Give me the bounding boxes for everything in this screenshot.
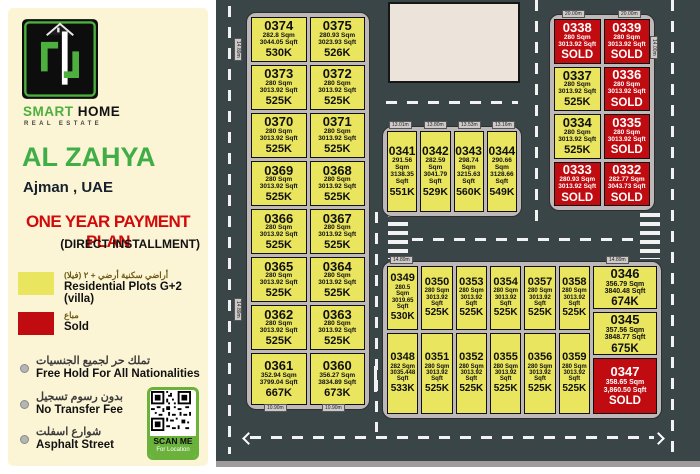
plot-area-sqft: 3013.92 Sqft — [422, 370, 451, 383]
dimension-tag: 10.90m — [322, 404, 345, 412]
feature-bullet — [20, 364, 29, 373]
plot-area-sqft: 3013.92 Sqft — [558, 137, 596, 144]
plot-0348: 0348282 Sqm3035.448 Sqft533K — [387, 333, 418, 414]
plot-number: 0373 — [264, 67, 293, 81]
plot-number: 0347 — [611, 365, 640, 379]
plot-sold-label: SOLD — [561, 192, 593, 204]
road-centerline-left — [228, 6, 231, 454]
dimension-tag: 13.16m — [492, 121, 515, 129]
feature-freehold-ar: تملك حر لجميع الجنسيات — [36, 354, 200, 367]
plot-0337: 0337280 Sqm3013.92 Sqft525K — [554, 67, 601, 112]
dimension-tag: 14.89m — [606, 256, 629, 264]
legend-sold-label-en: Sold — [64, 321, 214, 333]
plot-area-sqft: 3013.92 Sqft — [560, 370, 589, 383]
plot-area-sqft: 3013.92 Sqft — [608, 42, 646, 49]
feature-freehold-en: Free Hold For All Nationalities — [36, 368, 200, 380]
plot-number: 0362 — [264, 308, 293, 322]
plot-0374: 0374282.8 Sqm3044.05 Sqft530K — [251, 17, 307, 62]
plot-0356: 0356280 Sqm3013.92 Sqft525K — [524, 333, 555, 414]
qr-scan-label: SCAN ME — [150, 436, 196, 447]
plot-price: 525K — [494, 308, 518, 319]
plot-number: 0336 — [612, 68, 641, 82]
plot-area-sqft: 3013.92 Sqft — [608, 137, 646, 144]
plot-number: 0367 — [323, 212, 352, 226]
plot-price: 525K — [266, 336, 292, 348]
plot-number: 0374 — [264, 19, 293, 33]
plot-0370: 0370280 Sqm3013.92 Sqft525K — [251, 113, 307, 158]
plot-area-sqm: 291.56 Sqm — [388, 158, 416, 172]
plot-0351: 0351280 Sqm3013.92 Sqft525K — [421, 333, 452, 414]
plot-area-sqft: 3044.05 Sqft — [260, 40, 298, 47]
plot-price: 525K — [425, 308, 449, 319]
road-centerline-top — [386, 101, 518, 104]
plot-price: 525K — [266, 192, 292, 204]
plot-area-sqm: 356.79 Sqm — [606, 281, 645, 288]
plot-price: 525K — [494, 384, 518, 395]
block-southeast-plots: 0346356.79 Sqm3840.48 Sqft674K0345357.56… — [593, 266, 657, 414]
plot-price: 525K — [324, 144, 350, 156]
plot-0341: 0341291.56 Sqm3138.35 Sqft551K — [387, 131, 417, 212]
plot-price: 667K — [266, 388, 292, 400]
plot-number: 0375 — [323, 19, 352, 33]
dimension-tag: 13.53m — [458, 121, 481, 129]
plot-number: 0363 — [323, 308, 352, 322]
plot-price: 525K — [425, 384, 449, 395]
plot-price: 525K — [564, 97, 590, 109]
plot-area-sqft: 3013.92 Sqft — [558, 184, 596, 191]
road-centerline-bottom — [250, 436, 654, 439]
plot-0338: 0338280 Sqm3013.92 SqftSOLD — [554, 19, 601, 64]
project-title: AL ZAHYA — [22, 142, 156, 173]
plot-number: 0364 — [323, 260, 352, 274]
plot-area-sqft: 3013.92 Sqft — [318, 136, 356, 143]
plot-number: 0339 — [612, 21, 641, 35]
plot-price: 525K — [459, 384, 483, 395]
feature-asphalt-en: Asphalt Street — [36, 439, 114, 451]
plot-area-sqft: 3013.92 Sqft — [491, 370, 520, 383]
legend-available-swatch — [18, 272, 54, 295]
road-centerline-center — [412, 238, 636, 241]
plot-0339: 0339280 Sqm3013.92 SqftSOLD — [604, 19, 651, 64]
road-centerline-west — [375, 212, 378, 432]
plot-0332: 0332282.77 Sqm3043.73 SqftSOLD — [604, 162, 651, 207]
plot-number: 0365 — [264, 260, 293, 274]
plot-0344: 0344290.66 Sqm3128.66 Sqft549K — [487, 131, 517, 212]
smart-home-logo — [22, 18, 98, 100]
plot-area-sqft: 3013.92 Sqft — [491, 295, 520, 308]
plot-number: 0335 — [612, 116, 641, 130]
plot-price: 525K — [564, 145, 590, 157]
plot-price: 525K — [266, 144, 292, 156]
feature-no-fee-ar: بدون رسوم تسجيل — [36, 390, 123, 403]
plot-area-sqft: 3013.92 Sqft — [422, 295, 451, 308]
legend-available: أراضي سكنية أرضي + ٢ (فيلا) Residential … — [18, 270, 206, 300]
site-map: 0374282.8 Sqm3044.05 Sqft530K0375280.93 … — [216, 0, 700, 461]
plot-0342: 0342282.59 Sqm3041.79 Sqft529K — [420, 131, 450, 212]
road-centerline-mid — [535, 0, 538, 230]
plot-number: 0358 — [562, 277, 586, 289]
plot-number: 0334 — [563, 116, 592, 130]
offer-subheadline: (DIRECT INSTALLMENT) — [60, 237, 200, 251]
plot-area-sqft: 3013.92 Sqft — [558, 89, 596, 96]
plot-number: 0352 — [459, 352, 483, 364]
plot-area-sqft: 3128.66 Sqft — [488, 172, 516, 186]
plot-sold-label: SOLD — [561, 49, 593, 61]
plot-area-sqft: 3138.35 Sqft — [388, 172, 416, 186]
plot-number: 0346 — [611, 267, 640, 281]
plot-price: 525K — [459, 308, 483, 319]
plot-price: 551K — [390, 187, 415, 198]
plot-0373: 0373280 Sqm3013.92 Sqft525K — [251, 65, 307, 110]
block-south: 0349280.5 Sqm3019.65 Sqft530K0350280 Sqm… — [382, 261, 662, 419]
plot-0352: 0352280 Sqm3013.92 Sqft525K — [456, 333, 487, 414]
plot-0375: 0375280.93 Sqm3023.93 Sqft526K — [310, 17, 366, 62]
plot-price: 674K — [611, 296, 639, 308]
plot-price: 675K — [611, 343, 639, 355]
plot-number: 0345 — [611, 313, 640, 327]
brand-name: SMART HOME — [23, 104, 120, 119]
crosswalk-center-right — [640, 213, 660, 259]
feature-freehold: تملك حر لجميع الجنسيات Free Hold For All… — [36, 354, 200, 380]
road-arrow-left — [242, 432, 255, 445]
plot-area-sqft: 3013.92 Sqft — [260, 280, 298, 287]
plot-price: 526K — [324, 48, 350, 60]
plot-number: 0370 — [264, 115, 293, 129]
plot-number: 0371 — [323, 115, 352, 129]
plot-sold-label: SOLD — [611, 144, 643, 156]
community-building — [388, 2, 520, 83]
plot-price: 530K — [391, 312, 415, 323]
block-south-plots: 0349280.5 Sqm3019.65 Sqft530K0350280 Sqm… — [387, 266, 590, 414]
plot-area-sqft: 3023.93 Sqft — [318, 40, 356, 47]
plot-price: 525K — [324, 288, 350, 300]
feature-asphalt-ar: شوارع اسفلت — [36, 425, 114, 438]
plot-price: 533K — [391, 384, 415, 395]
plot-number: 0338 — [563, 21, 592, 35]
dimension-tag: 14.89m — [234, 298, 242, 321]
plot-number: 0359 — [562, 352, 586, 364]
plot-sold-label: SOLD — [611, 97, 643, 109]
plot-price: 549K — [489, 187, 514, 198]
plot-area-sqm: 357.56 Sqm — [606, 327, 645, 334]
plot-area-sqm: 298.74 Sqm — [455, 158, 483, 172]
plot-price: 525K — [528, 384, 552, 395]
plot-0362: 0362280 Sqm3013.92 Sqft525K — [251, 305, 307, 350]
plot-0369: 0369280 Sqm3013.92 Sqft525K — [251, 161, 307, 206]
plot-area-sqft: 3215.63 Sqft — [455, 172, 483, 186]
plot-0361: 0361352.94 Sqm3799.04 Sqft667K — [251, 353, 307, 405]
legend-sold: مباع Sold — [18, 310, 206, 340]
plot-area-sqft: 3013.92 Sqft — [558, 42, 596, 49]
plot-number: 0333 — [563, 163, 592, 177]
plot-number: 0355 — [493, 352, 517, 364]
plot-area-sqft: 3013.92 Sqft — [260, 184, 298, 191]
plot-price: 530K — [266, 48, 292, 60]
crosswalk-center-left — [388, 213, 408, 259]
plot-number: 0369 — [264, 164, 293, 178]
feature-no-fee-en: No Transfer Fee — [36, 404, 123, 416]
plot-number: 0332 — [612, 163, 641, 177]
plot-area-sqft: 3013.92 Sqft — [457, 370, 486, 383]
plot-price: 525K — [562, 308, 586, 319]
legend-available-label-ar: أراضي سكنية أرضي + ٢ (فيلا) — [64, 270, 204, 281]
plot-0354: 0354280 Sqm3013.92 Sqft525K — [490, 266, 521, 330]
block-northeast-plots: 0338280 Sqm3013.92 SqftSOLD0339280 Sqm30… — [554, 19, 650, 206]
plot-number: 0366 — [264, 212, 293, 226]
feature-asphalt: شوارع اسفلت Asphalt Street — [36, 425, 114, 451]
plot-area-sqm: 282.59 Sqm — [421, 158, 449, 172]
block-west-plots: 0374282.8 Sqm3044.05 Sqft530K0375280.93 … — [251, 17, 365, 405]
block-center: 0341291.56 Sqm3138.35 Sqft551K0342282.59… — [382, 126, 522, 217]
plot-price: 525K — [562, 384, 586, 395]
plot-area-sqft: 3013.92 Sqft — [318, 280, 356, 287]
plot-area-sqft: 3013.92 Sqft — [560, 295, 589, 308]
info-sidebar: SMART HOME REAL ESTATE AL ZAHYA Ajman , … — [8, 8, 208, 466]
plot-0353: 0353280 Sqm3013.92 Sqft525K — [456, 266, 487, 330]
plot-price: 525K — [266, 240, 292, 252]
plot-price: 560K — [456, 187, 481, 198]
plot-0364: 0364280 Sqm3013.92 Sqft525K — [310, 257, 366, 302]
plot-price: 529K — [423, 187, 448, 198]
plot-price: 525K — [324, 192, 350, 204]
plot-area-sqft: 3799.04 Sqft — [260, 380, 298, 387]
plot-area-sqft: 3013.92 Sqft — [525, 295, 554, 308]
plot-number: 0361 — [264, 359, 293, 373]
plot-area-sqft: 3013.92 Sqft — [260, 328, 298, 335]
plot-0358: 0358280 Sqm3013.92 Sqft525K — [559, 266, 590, 330]
road-centerline-right — [671, 0, 674, 452]
plot-area-sqft: 3834.89 Sqft — [318, 380, 356, 387]
plot-0347: 0347358.65 Sqm3,860.50 SqftSOLD — [593, 358, 657, 414]
plot-0367: 0367280 Sqm3013.92 Sqft525K — [310, 209, 366, 254]
qr-code-box: SCAN ME For Location — [147, 387, 199, 460]
plot-price: 525K — [324, 96, 350, 108]
plot-area-sqft: 3035.448 Sqft — [388, 370, 417, 383]
plot-area-sqft: 3043.73 Sqft — [608, 184, 646, 191]
project-location: Ajman , UAE — [23, 179, 113, 196]
plot-sold-label: SOLD — [609, 395, 641, 407]
plot-price: 673K — [324, 388, 350, 400]
plot-sold-label: SOLD — [611, 192, 643, 204]
plot-0359: 0359280 Sqm3013.92 Sqft525K — [559, 333, 590, 414]
plot-0357: 0357280 Sqm3013.92 Sqft525K — [524, 266, 555, 330]
feature-bullet — [20, 435, 29, 444]
block-center-plots: 0341291.56 Sqm3138.35 Sqft551K0342282.59… — [387, 131, 517, 212]
plot-area-sqft: 3013.92 Sqft — [260, 136, 298, 143]
qr-caption: SCAN ME For Location — [150, 436, 196, 457]
legend-sold-swatch — [18, 312, 54, 335]
plot-area-sqft: 3019.65 Sqft — [388, 298, 417, 311]
plot-0366: 0366280 Sqm3013.92 Sqft525K — [251, 209, 307, 254]
dimension-tag: 14.89m — [234, 38, 242, 61]
plot-area-sqft: 3848.77 Sqft — [605, 334, 646, 341]
plot-number: 0368 — [323, 164, 352, 178]
dimension-tag: 10.90m — [264, 404, 287, 412]
plot-0345: 0345357.56 Sqm3848.77 Sqft675K — [593, 312, 657, 355]
plot-area-sqft: 3013.92 Sqft — [318, 328, 356, 335]
plot-area-sqft: 3013.92 Sqft — [260, 88, 298, 95]
plot-price: 525K — [266, 96, 292, 108]
plot-number: 0360 — [323, 359, 352, 373]
plot-number: 0349 — [390, 273, 414, 285]
plot-0371: 0371280 Sqm3013.92 Sqft525K — [310, 113, 366, 158]
plot-0349: 0349280.5 Sqm3019.65 Sqft530K — [387, 266, 418, 330]
plot-0368: 0368280 Sqm3013.92 Sqft525K — [310, 161, 366, 206]
plot-area-sqft: 3013.92 Sqft — [318, 88, 356, 95]
plot-0355: 0355280 Sqm3013.92 Sqft525K — [490, 333, 521, 414]
dimension-tag: 14.89m — [390, 256, 413, 264]
plot-area-sqft: 3013.92 Sqft — [608, 89, 646, 96]
dimension-tag: 13.01m — [389, 121, 412, 129]
brand-secondary: HOME — [78, 104, 121, 119]
road-arrow-right — [652, 432, 665, 445]
plot-area-sqft: 3840.48 Sqft — [605, 288, 646, 295]
plot-price: 525K — [266, 288, 292, 300]
block-west: 0374282.8 Sqm3044.05 Sqft530K0375280.93 … — [246, 12, 370, 410]
brand-primary: SMART — [23, 104, 74, 119]
plot-sold-label: SOLD — [611, 49, 643, 61]
plot-area-sqft: 3,860.50 Sqft — [604, 387, 647, 394]
feature-no-fee: بدون رسوم تسجيل No Transfer Fee — [36, 390, 123, 416]
plot-0346: 0346356.79 Sqm3840.48 Sqft674K — [593, 266, 657, 309]
plot-area-sqft: 3013.92 Sqft — [260, 232, 298, 239]
plot-number: 0337 — [563, 69, 592, 83]
plot-area-sqft: 3013.92 Sqft — [525, 370, 554, 383]
dimension-tag: 14.00m — [650, 36, 658, 59]
plot-area-sqm: 280.5 Sqm — [388, 285, 417, 298]
plot-number: 0372 — [323, 67, 352, 81]
plot-number: 0353 — [459, 277, 483, 289]
plot-0335: 0335280 Sqm3013.92 SqftSOLD — [604, 114, 651, 159]
qr-location-label: For Location — [150, 447, 196, 454]
plot-price: 525K — [324, 240, 350, 252]
plot-0334: 0334280 Sqm3013.92 Sqft525K — [554, 114, 601, 159]
plot-0350: 0350280 Sqm3013.92 Sqft525K — [421, 266, 452, 330]
map-edge-sidewalk — [216, 461, 700, 467]
plot-0363: 0363280 Sqm3013.92 Sqft525K — [310, 305, 366, 350]
plot-price: 525K — [528, 308, 552, 319]
plot-number: 0351 — [425, 352, 449, 364]
plot-0336: 0336280 Sqm3013.92 SqftSOLD — [604, 67, 651, 112]
plot-number: 0356 — [528, 352, 552, 364]
dimension-tag: 20.00m — [618, 10, 641, 18]
plot-area-sqm: 358.65 Sqm — [606, 379, 645, 386]
plot-0333: 0333280.93 Sqm3013.92 SqftSOLD — [554, 162, 601, 207]
plot-0360: 0360356.27 Sqm3834.89 Sqft673K — [310, 353, 366, 405]
plot-area-sqft: 3013.92 Sqft — [457, 295, 486, 308]
brand-subtitle: REAL ESTATE — [24, 121, 102, 127]
plot-area-sqft: 3013.92 Sqft — [318, 184, 356, 191]
plot-number: 0350 — [425, 277, 449, 289]
plot-0365: 0365280 Sqm3013.92 Sqft525K — [251, 257, 307, 302]
plot-0343: 0343298.74 Sqm3215.63 Sqft560K — [454, 131, 484, 212]
plot-area-sqm: 290.66 Sqm — [488, 158, 516, 172]
plot-area-sqft: 3013.92 Sqft — [318, 232, 356, 239]
dimension-tag: 13.80m — [424, 121, 447, 129]
qr-code-icon — [151, 391, 191, 431]
block-northeast: 0338280 Sqm3013.92 SqftSOLD0339280 Sqm30… — [549, 14, 655, 211]
feature-bullet — [20, 400, 29, 409]
plot-area-sqft: 3041.79 Sqft — [421, 172, 449, 186]
plot-0372: 0372280 Sqm3013.92 Sqft525K — [310, 65, 366, 110]
plot-number: 0354 — [493, 277, 517, 289]
legend-sold-label-ar: مباع — [64, 310, 204, 321]
plot-number: 0357 — [528, 277, 552, 289]
plot-price: 525K — [324, 336, 350, 348]
plot-number: 0348 — [390, 352, 414, 364]
dimension-tag: 20.00m — [562, 10, 585, 18]
legend-available-label-en: Residential Plots G+2 (villa) — [64, 281, 214, 305]
